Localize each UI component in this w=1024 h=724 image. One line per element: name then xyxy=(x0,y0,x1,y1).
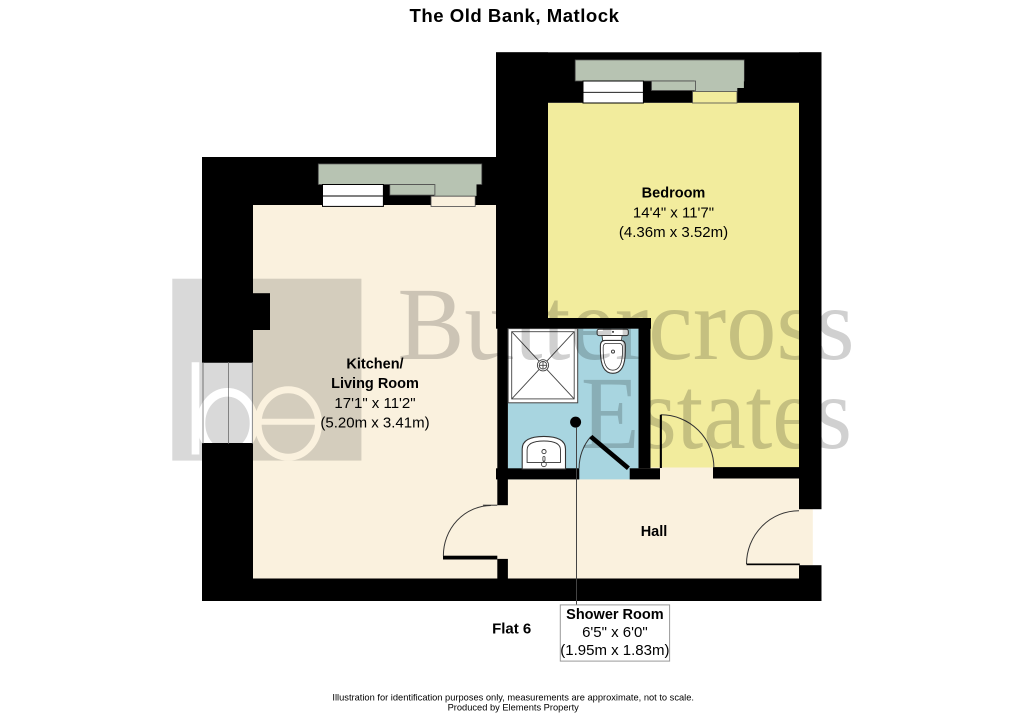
svg-text:(4.36m x 3.52m): (4.36m x 3.52m) xyxy=(619,224,728,241)
svg-text:6'5" x 6'0": 6'5" x 6'0" xyxy=(582,624,648,641)
svg-text:Produced by Elements Property: Produced by Elements Property xyxy=(448,703,580,713)
svg-text:14'4" x 11'7": 14'4" x 11'7" xyxy=(633,205,714,222)
svg-text:Flat 6: Flat 6 xyxy=(492,620,531,637)
svg-text:Hall: Hall xyxy=(641,524,668,540)
svg-text:Bedroom: Bedroom xyxy=(642,186,706,202)
svg-text:Estates: Estates xyxy=(581,356,852,471)
svg-text:Shower Room: Shower Room xyxy=(566,607,663,623)
svg-text:The Old Bank, Matlock: The Old Bank, Matlock xyxy=(410,5,620,26)
svg-text:(1.95m x 1.83m): (1.95m x 1.83m) xyxy=(560,642,669,659)
svg-text:Illustration for identificatio: Illustration for identification purposes… xyxy=(332,692,694,702)
